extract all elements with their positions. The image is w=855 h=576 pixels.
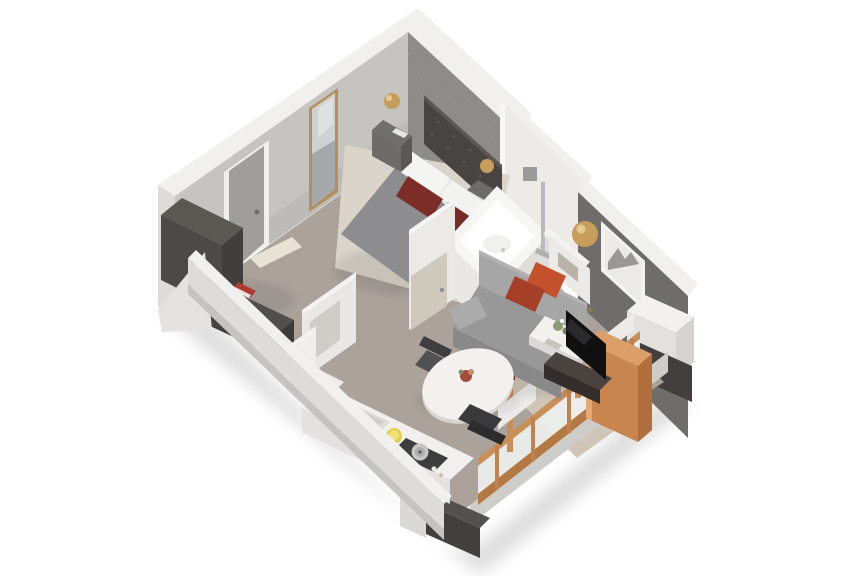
- table-flowers: [560, 319, 564, 323]
- lamp-left-highlight: [386, 95, 392, 101]
- bottle-2: [439, 473, 443, 477]
- centerpiece-flowers-2: [468, 369, 474, 375]
- floor-lamp-shade: [572, 221, 598, 247]
- bathroom-door-handle: [440, 288, 444, 292]
- floor-lamp-highlight: [577, 225, 586, 234]
- wall-mirror: [309, 88, 338, 212]
- lamp-right-globe: [480, 159, 494, 173]
- centerpiece-greens: [459, 370, 464, 375]
- pot-knob: [418, 450, 421, 453]
- floorplan-svg: [0, 0, 855, 576]
- bottle-1: [431, 466, 436, 471]
- shower-column: [541, 182, 545, 252]
- door-handle: [255, 210, 260, 215]
- lamp-left-globe: [384, 93, 400, 109]
- floorplan-render: [0, 0, 855, 576]
- bathtub-floor: [483, 235, 511, 253]
- shower-head: [523, 167, 537, 181]
- bathtub-drain: [501, 248, 505, 252]
- copper-panel-side: [638, 354, 652, 442]
